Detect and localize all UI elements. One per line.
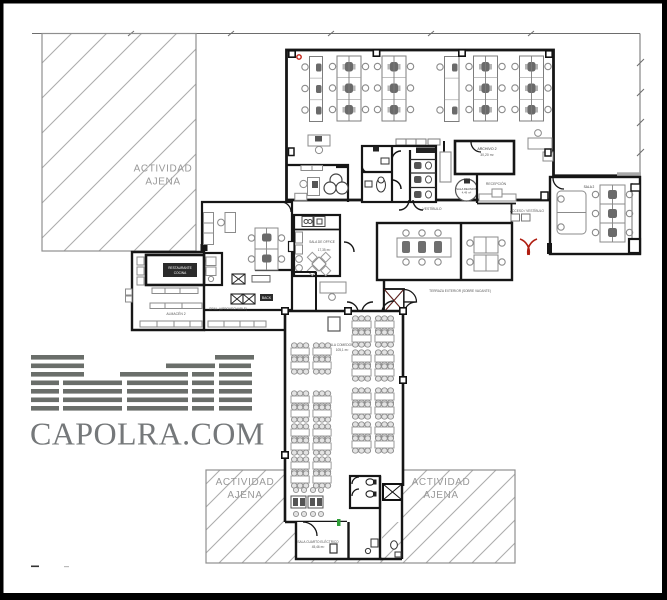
svg-text:ACTIVIDAD: ACTIVIDAD <box>412 477 471 488</box>
svg-text:17,35 m²: 17,35 m² <box>318 248 331 252</box>
svg-text:BACK: BACK <box>262 296 272 300</box>
svg-text:RECEPCIÓN: RECEPCIÓN <box>486 181 507 186</box>
svg-text:30,20 m²: 30,20 m² <box>480 153 494 157</box>
svg-text:COCINA: COCINA <box>174 271 187 275</box>
svg-text:RESTAURANTE: RESTAURANTE <box>168 266 192 270</box>
svg-text:SALA DE OFFICE: SALA DE OFFICE <box>309 240 335 244</box>
svg-text:ACCESO / VESTÍBULO: ACCESO / VESTÍBULO <box>510 209 545 213</box>
svg-text:AJENA: AJENA <box>145 177 180 188</box>
svg-text:GRILL (APROVECHABLE): GRILL (APROVECHABLE) <box>209 307 247 311</box>
svg-text:105,1 m²: 105,1 m² <box>336 348 349 352</box>
svg-text:4,49 m²: 4,49 m² <box>462 191 472 195</box>
svg-text:AJENA: AJENA <box>423 490 458 501</box>
svg-text:TERRAZA EXTERIOR (SOBRE VACANT: TERRAZA EXTERIOR (SOBRE VACANTE) <box>429 289 491 293</box>
svg-text:ARCHIVO 2: ARCHIVO 2 <box>477 147 496 151</box>
svg-text:AJENA: AJENA <box>227 490 262 501</box>
svg-text:ALMACÉN 2: ALMACÉN 2 <box>166 311 185 316</box>
svg-text:45,46 m²: 45,46 m² <box>312 545 325 549</box>
svg-text:VESTÍBULO: VESTÍBULO <box>422 207 441 211</box>
svg-text:ACTIVIDAD: ACTIVIDAD <box>216 477 275 488</box>
svg-text:SALA CUARTO ELÉCTRICO: SALA CUARTO ELÉCTRICO <box>297 539 339 544</box>
svg-text:ACTIVIDAD: ACTIVIDAD <box>134 164 193 175</box>
svg-text:CAPOLRA.COM: CAPOLRA.COM <box>30 416 265 452</box>
svg-text:SALA 2: SALA 2 <box>584 185 595 189</box>
